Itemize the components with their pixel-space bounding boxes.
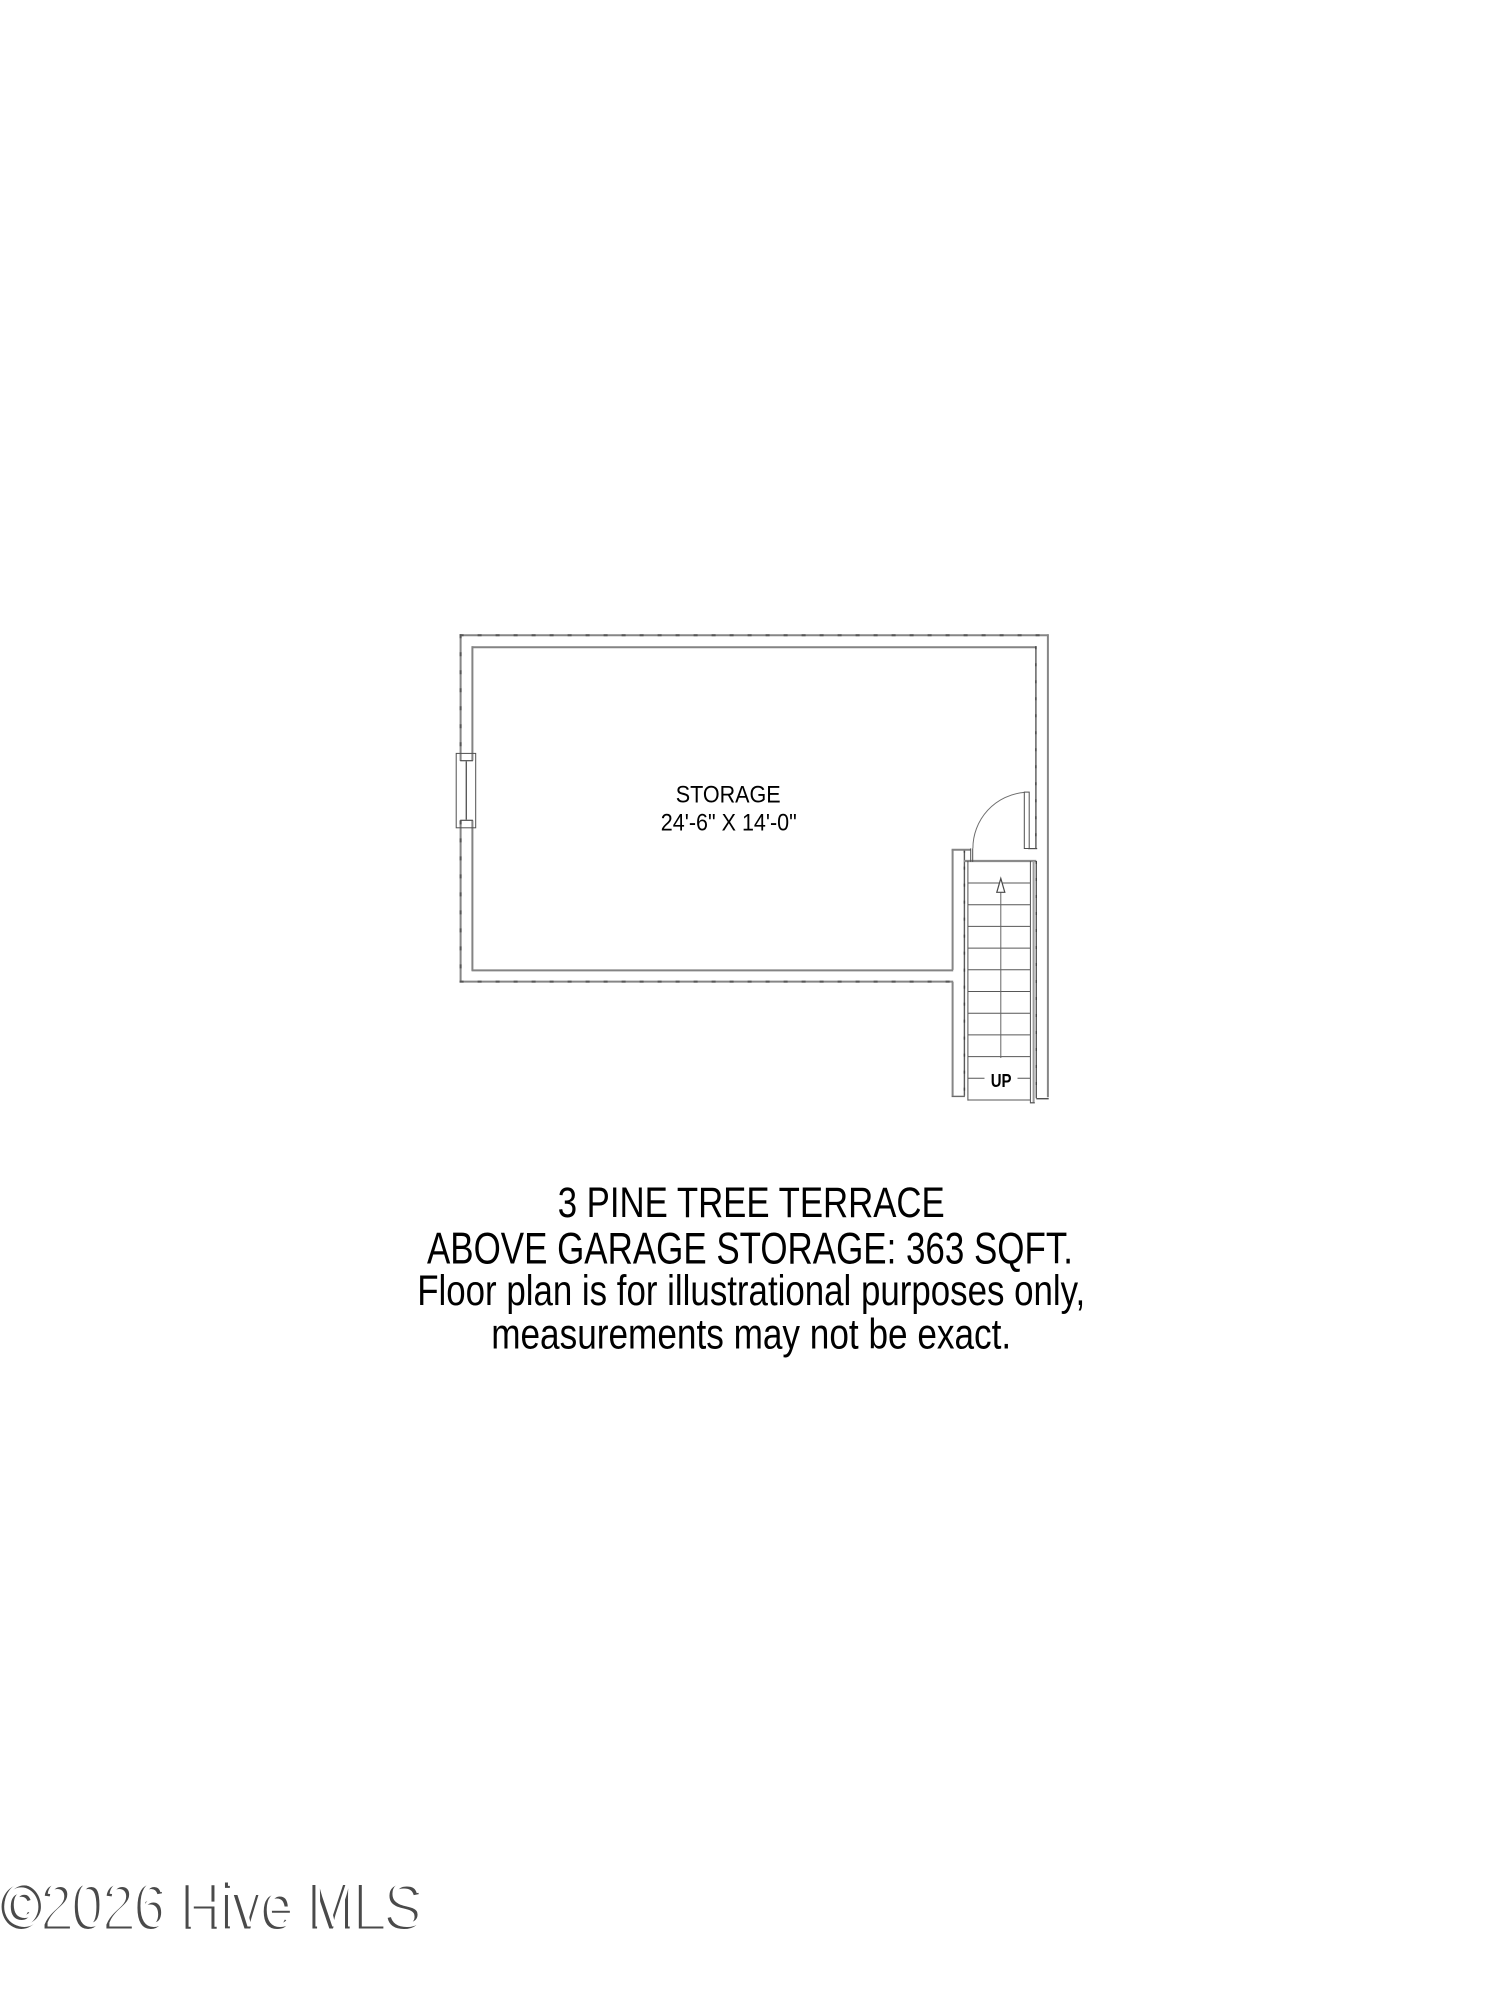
- svg-text:measurements may not be exact.: measurements may not be exact.: [491, 1310, 1011, 1358]
- svg-text:Floor plan is for illustration: Floor plan is for illustrational purpose…: [417, 1267, 1085, 1315]
- svg-text:24'-6" X 14'-0": 24'-6" X 14'-0": [661, 810, 797, 837]
- svg-text:©2026 Hive MLS: ©2026 Hive MLS: [4, 1871, 426, 1941]
- svg-text:UP: UP: [991, 1071, 1012, 1091]
- svg-text:STORAGE: STORAGE: [676, 781, 781, 808]
- svg-text:3 PINE TREE TERRACE: 3 PINE TREE TERRACE: [558, 1179, 945, 1227]
